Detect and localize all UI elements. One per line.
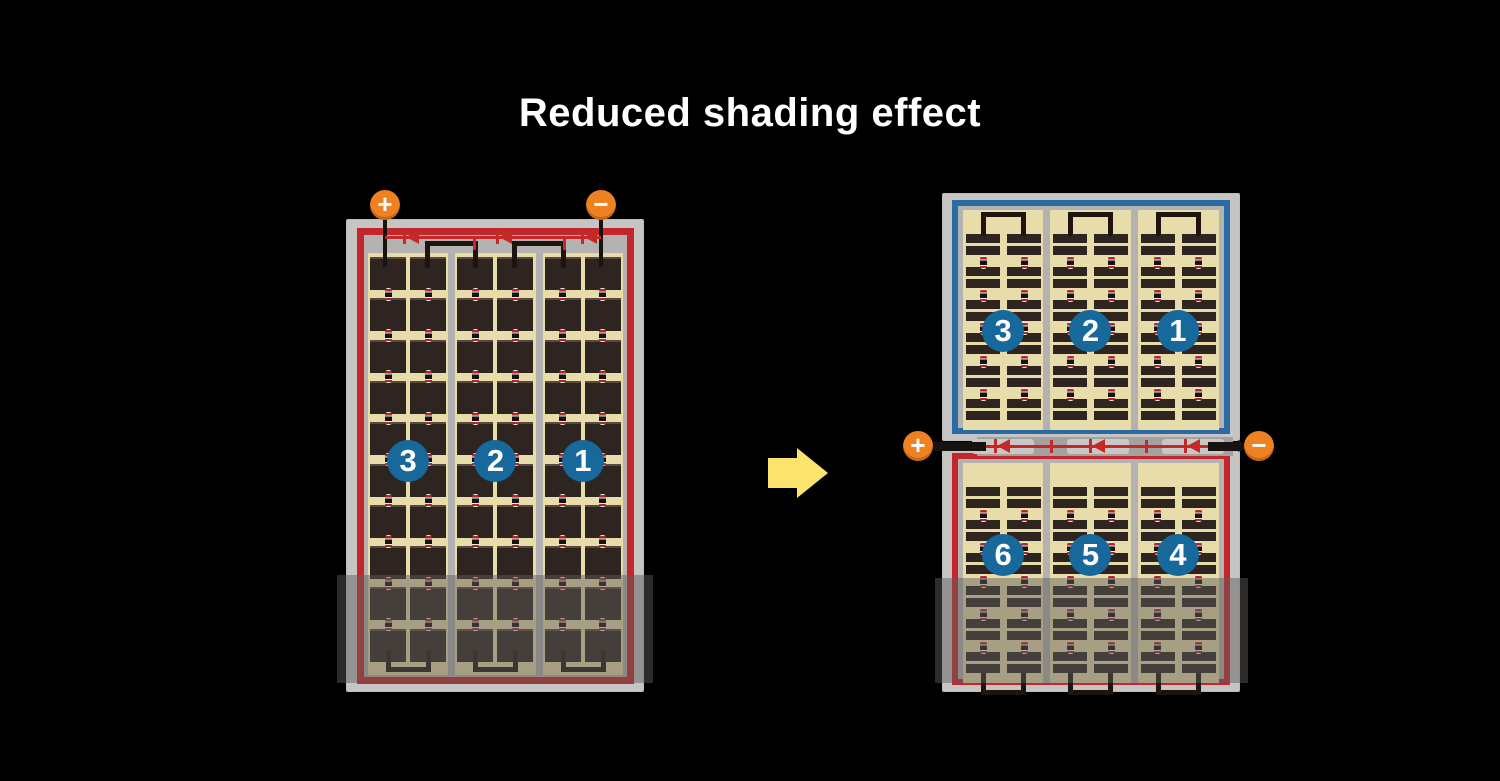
- solar-half-cell: [1053, 246, 1087, 255]
- cell-connector-dot: [980, 355, 987, 368]
- cell-connector-dot: [472, 370, 479, 383]
- cell-connector-dot: [385, 329, 392, 342]
- cell-connector-dot: [512, 412, 519, 425]
- bypass-diode-icon: [1092, 439, 1105, 453]
- diagram-canvas: Reduced shading effect +−321321654+−: [0, 0, 1500, 781]
- solar-cell: [457, 381, 493, 414]
- cell-connector-dot: [512, 329, 519, 342]
- cell-connector-dot: [980, 289, 987, 302]
- solar-half-cell: [1182, 246, 1216, 255]
- solar-cell: [545, 340, 581, 373]
- number-badge: 3: [387, 440, 429, 482]
- solar-half-cell: [1182, 378, 1216, 387]
- terminal-plus: +: [903, 431, 933, 461]
- solar-half-cell: [966, 499, 1000, 508]
- cell-connector-dot: [599, 412, 606, 425]
- cell-connector-dot: [425, 288, 432, 301]
- busbar-top-bridge: [981, 212, 1026, 236]
- solar-half-cell: [1141, 246, 1175, 255]
- cell-connector-dot: [385, 535, 392, 548]
- solar-cell: [370, 505, 406, 538]
- number-badge: 3: [982, 310, 1024, 352]
- cell-connector-dot: [1154, 256, 1161, 269]
- solar-cell: [497, 298, 533, 331]
- solar-half-cell: [1094, 499, 1128, 508]
- cell-connector-dot: [1067, 509, 1074, 522]
- cell-connector-dot: [599, 329, 606, 342]
- solar-cell: [585, 381, 621, 414]
- circuit-tap: [1050, 440, 1053, 453]
- cell-connector-dot: [1021, 256, 1028, 269]
- terminal-wire: [1208, 442, 1240, 451]
- cell-connector-dot: [425, 412, 432, 425]
- cell-connector-dot: [599, 494, 606, 507]
- cell-connector-dot: [1195, 509, 1202, 522]
- solar-half-cell: [1007, 411, 1041, 420]
- solar-cell: [497, 505, 533, 538]
- cell-connector-dot: [1021, 388, 1028, 401]
- cell-connector-dot: [1067, 388, 1074, 401]
- solar-cell: [545, 381, 581, 414]
- solar-cell: [585, 298, 621, 331]
- solar-half-cell: [1094, 246, 1128, 255]
- diagram-title: Reduced shading effect: [0, 91, 1500, 136]
- busbar-top-bridge: [512, 241, 565, 268]
- solar-half-cell: [966, 246, 1000, 255]
- solar-half-cell: [1007, 487, 1041, 496]
- solar-half-cell: [966, 279, 1000, 288]
- terminal-minus: −: [586, 190, 616, 220]
- solar-half-cell: [1053, 279, 1087, 288]
- cell-connector-dot: [385, 412, 392, 425]
- cell-connector-dot: [599, 288, 606, 301]
- solar-half-cell: [966, 378, 1000, 387]
- circuit-wire: [985, 445, 1238, 448]
- cell-connector-dot: [1154, 355, 1161, 368]
- solar-half-cell: [966, 487, 1000, 496]
- solar-cell: [410, 505, 446, 538]
- cell-connector-dot: [1108, 355, 1115, 368]
- solar-cell: [370, 340, 406, 373]
- cell-connector-dot: [425, 329, 432, 342]
- cell-connector-dot: [559, 412, 566, 425]
- cell-connector-dot: [980, 256, 987, 269]
- busbar-top-bridge: [425, 241, 478, 268]
- solar-half-cell: [1007, 246, 1041, 255]
- shading-overlay: [337, 575, 653, 683]
- terminal-minus: −: [1244, 431, 1274, 461]
- cell-connector-dot: [559, 370, 566, 383]
- solar-half-cell: [1094, 487, 1128, 496]
- cell-connector-dot: [1108, 256, 1115, 269]
- solar-half-cell: [1182, 279, 1216, 288]
- cell-connector-dot: [472, 412, 479, 425]
- solar-half-cell: [1094, 279, 1128, 288]
- solar-half-cell: [966, 411, 1000, 420]
- shading-overlay: [935, 578, 1248, 683]
- solar-half-cell: [1094, 411, 1128, 420]
- solar-half-cell: [1094, 378, 1128, 387]
- cell-connector-dot: [980, 388, 987, 401]
- cell-connector-dot: [559, 329, 566, 342]
- solar-cell: [545, 505, 581, 538]
- solar-half-cell: [1053, 411, 1087, 420]
- solar-half-cell: [1141, 499, 1175, 508]
- busbar-top-bridge: [1156, 212, 1201, 236]
- cell-connector-dot: [425, 535, 432, 548]
- bypass-diode-icon: [584, 230, 597, 244]
- circuit-tap: [563, 237, 566, 250]
- cell-connector-dot: [1021, 289, 1028, 302]
- section-divider: [1131, 210, 1138, 430]
- solar-half-cell: [1141, 487, 1175, 496]
- solar-cell: [410, 298, 446, 331]
- solar-half-cell: [1141, 378, 1175, 387]
- solar-half-cell: [1053, 378, 1087, 387]
- cell-connector-dot: [425, 370, 432, 383]
- number-badge: 4: [1157, 534, 1199, 576]
- circuit-tap: [1145, 440, 1148, 453]
- cell-connector-dot: [1195, 388, 1202, 401]
- solar-cell: [497, 381, 533, 414]
- bypass-diode-icon: [406, 230, 419, 244]
- solar-cell: [457, 505, 493, 538]
- solar-half-cell: [1007, 279, 1041, 288]
- solar-half-cell: [1141, 279, 1175, 288]
- cell-connector-dot: [1154, 509, 1161, 522]
- cell-connector-dot: [1195, 256, 1202, 269]
- cell-connector-dot: [1067, 289, 1074, 302]
- circuit-tap: [473, 237, 476, 250]
- solar-half-cell: [1182, 411, 1216, 420]
- cell-connector-dot: [1021, 355, 1028, 368]
- solar-cell: [585, 505, 621, 538]
- solar-half-cell: [1182, 487, 1216, 496]
- cell-connector-dot: [1154, 388, 1161, 401]
- number-badge: 6: [982, 534, 1024, 576]
- solar-cell: [370, 298, 406, 331]
- solar-cell: [370, 381, 406, 414]
- bypass-diode-icon: [499, 230, 512, 244]
- solar-half-cell: [1141, 411, 1175, 420]
- cell-connector-dot: [512, 288, 519, 301]
- cell-connector-dot: [1195, 289, 1202, 302]
- solar-cell: [545, 298, 581, 331]
- cell-connector-dot: [1108, 388, 1115, 401]
- cell-connector-dot: [1021, 509, 1028, 522]
- cell-connector-dot: [1195, 355, 1202, 368]
- cell-connector-dot: [512, 494, 519, 507]
- solar-half-cell: [1007, 378, 1041, 387]
- cell-connector-dot: [1108, 509, 1115, 522]
- cell-connector-dot: [385, 370, 392, 383]
- cell-connector-dot: [559, 535, 566, 548]
- solar-cell: [457, 298, 493, 331]
- number-badge: 1: [1157, 310, 1199, 352]
- cell-connector-dot: [559, 288, 566, 301]
- cell-connector-dot: [472, 535, 479, 548]
- terminal-plus: +: [370, 190, 400, 220]
- cell-connector-dot: [512, 370, 519, 383]
- cell-connector-dot: [1154, 289, 1161, 302]
- cell-connector-dot: [1067, 256, 1074, 269]
- solar-half-cell: [1007, 499, 1041, 508]
- solar-cell: [497, 340, 533, 373]
- bypass-diode-icon: [1187, 439, 1200, 453]
- cell-connector-dot: [599, 370, 606, 383]
- bypass-diode-icon: [997, 439, 1010, 453]
- cell-connector-dot: [1108, 289, 1115, 302]
- cell-connector-dot: [980, 509, 987, 522]
- terminal-wire: [936, 442, 986, 451]
- cell-connector-dot: [472, 288, 479, 301]
- cell-connector-dot: [512, 535, 519, 548]
- busbar-top-bridge: [1068, 212, 1113, 236]
- solar-cell: [410, 381, 446, 414]
- number-badge: 1: [562, 440, 604, 482]
- cell-connector-dot: [385, 288, 392, 301]
- solar-half-cell: [1053, 487, 1087, 496]
- solar-cell: [457, 340, 493, 373]
- solar-cell: [585, 340, 621, 373]
- cell-connector-dot: [1067, 355, 1074, 368]
- cell-connector-dot: [599, 535, 606, 548]
- cell-connector-dot: [559, 494, 566, 507]
- solar-cell: [370, 257, 406, 290]
- cell-connector-dot: [472, 494, 479, 507]
- solar-half-cell: [1182, 499, 1216, 508]
- arrow-head: [797, 448, 828, 498]
- solar-cell: [410, 340, 446, 373]
- section-divider: [1043, 210, 1050, 430]
- solar-half-cell: [1053, 499, 1087, 508]
- cell-connector-dot: [385, 494, 392, 507]
- cell-connector-dot: [425, 494, 432, 507]
- cell-connector-dot: [472, 329, 479, 342]
- arrow-body: [768, 458, 799, 488]
